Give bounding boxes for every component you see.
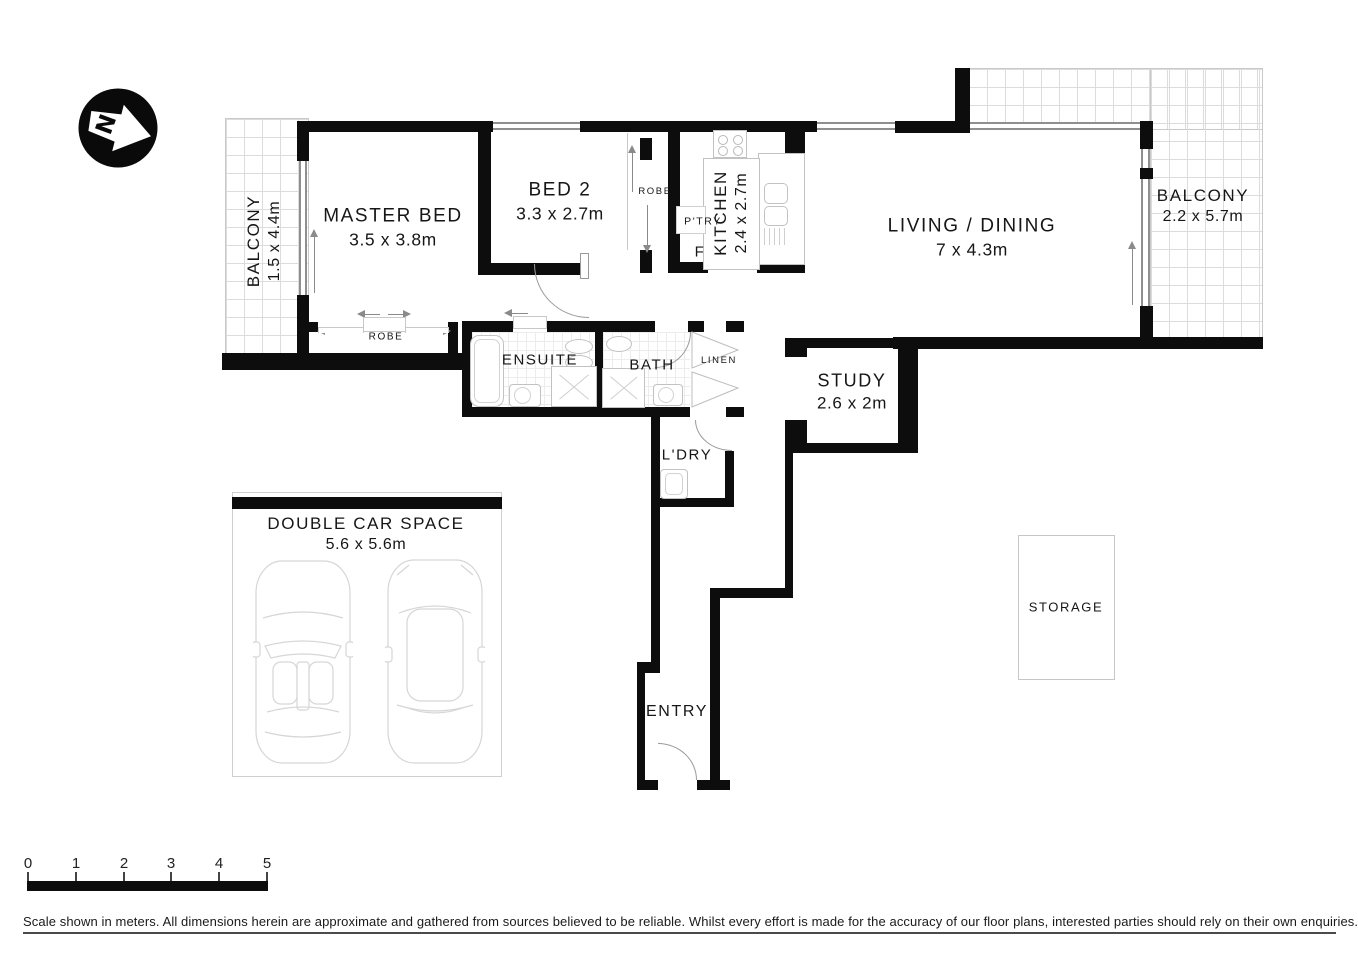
scale-tick [123, 872, 125, 881]
wall [668, 262, 708, 273]
robe-niche [363, 317, 406, 332]
floor-plan: N [0, 0, 1358, 960]
scale-label: 5 [263, 855, 271, 872]
slide-arrow [1132, 248, 1133, 305]
window [1141, 149, 1150, 168]
wall [710, 598, 720, 790]
sink-icon [764, 183, 788, 204]
linen-doors-icon [688, 330, 744, 410]
sink-drainer [764, 228, 788, 245]
room-label-kitchen: KITCHEN 2.4 x 2.7m [710, 170, 752, 256]
wall [785, 453, 793, 598]
room-label-study: STUDY 2.6 x 2m [817, 370, 887, 415]
scale-tick [27, 872, 29, 881]
room-label-robe-master: ROBE [369, 332, 404, 345]
window [1141, 179, 1150, 306]
scale-bar-rule [27, 881, 268, 891]
wall [785, 420, 807, 453]
room-label-balcony-left: BALCONY 1.5 x 4.4m [243, 195, 285, 287]
wall [898, 348, 918, 453]
arrow-up-icon [1128, 241, 1136, 249]
wall [895, 121, 956, 133]
arrow-up-icon [310, 229, 318, 237]
robe-arrow [388, 314, 404, 315]
room-label-laundry: L'DRY [662, 445, 713, 464]
disclaimer-text: Scale shown in meters. All dimensions he… [23, 914, 1358, 929]
wall [1140, 168, 1153, 179]
toilet-seat [658, 387, 674, 403]
robe-front-line [627, 133, 628, 250]
room-label-living-dining: LIVING / DINING 7 x 4.3m [888, 215, 1057, 262]
room-label-master-bed: MASTER BED 3.5 x 3.8m [323, 205, 463, 252]
sink-icon [764, 206, 788, 226]
wall [710, 588, 793, 598]
north-arrow-icon: N [78, 88, 158, 168]
arrow-left-icon [504, 309, 512, 317]
toilet-seat [514, 387, 531, 404]
wall [651, 498, 733, 507]
robe-arrow [647, 205, 648, 245]
wall [222, 353, 465, 370]
window [970, 122, 1140, 130]
wall [462, 407, 690, 417]
arrow-down-icon [643, 245, 651, 253]
room-label-bed2: BED 2 3.3 x 2.7m [516, 179, 604, 226]
wall [785, 338, 807, 357]
wall [598, 321, 655, 332]
wall [697, 780, 730, 790]
scale-tick [266, 872, 268, 881]
room-label-balcony-right: BALCONY 2.2 x 5.7m [1157, 185, 1249, 227]
robe-arrow [632, 152, 633, 192]
room-label-storage: STORAGE [1029, 600, 1104, 617]
car-top-view-icon [385, 555, 485, 768]
arrow-up-icon [628, 145, 636, 153]
wall [637, 662, 645, 790]
wall [785, 127, 805, 153]
room-label-robe-bed2: ROBE [638, 186, 671, 198]
wall [668, 131, 680, 273]
wall [651, 415, 660, 667]
wall [462, 321, 513, 332]
room-label-linen: LINEN [701, 355, 737, 367]
scale-tick [170, 872, 172, 881]
divider [23, 932, 1336, 934]
shower-icon [551, 366, 597, 407]
wall [297, 121, 309, 161]
scale-label: 3 [167, 855, 175, 872]
robe-sill [405, 327, 449, 333]
scale-label: 2 [120, 855, 128, 872]
room-label-bath: BATH [629, 355, 674, 374]
car-space-wall [232, 497, 502, 509]
slide-arrow [314, 236, 315, 293]
wall [298, 121, 493, 132]
wall [640, 138, 652, 160]
wall [478, 131, 491, 275]
scale-tick [75, 872, 77, 881]
laundry-tub-inner [665, 473, 683, 495]
window [299, 161, 307, 295]
room-label-ensuite: ENSUITE [502, 350, 578, 369]
window [493, 122, 580, 130]
wall [725, 451, 734, 507]
door-arc [658, 743, 697, 780]
scale-label: 0 [24, 855, 32, 872]
room-label-fridge: F [695, 242, 706, 261]
window [817, 122, 895, 130]
robe-sill [318, 327, 364, 333]
wall [893, 337, 1263, 349]
wall [580, 121, 817, 132]
door-leaf [580, 253, 589, 279]
wall [955, 68, 970, 133]
basin-icon [606, 336, 632, 352]
scale-tick [218, 872, 220, 881]
wall [1140, 306, 1153, 338]
stove-icon [713, 130, 747, 158]
ensuite-niche [513, 316, 547, 329]
bathtub-inner [474, 339, 500, 403]
wall [547, 321, 598, 332]
robe-arrow [364, 314, 380, 315]
room-label-car-space: DOUBLE CAR SPACE 5.6 x 5.6m [267, 513, 464, 555]
room-label-entry: ENTRY [646, 702, 708, 722]
niche-arrow [511, 313, 528, 314]
car-top-view-icon [253, 556, 353, 768]
scale-label: 4 [215, 855, 223, 872]
wall [640, 250, 652, 273]
wall [1140, 121, 1153, 149]
scale-label: 1 [72, 855, 80, 872]
